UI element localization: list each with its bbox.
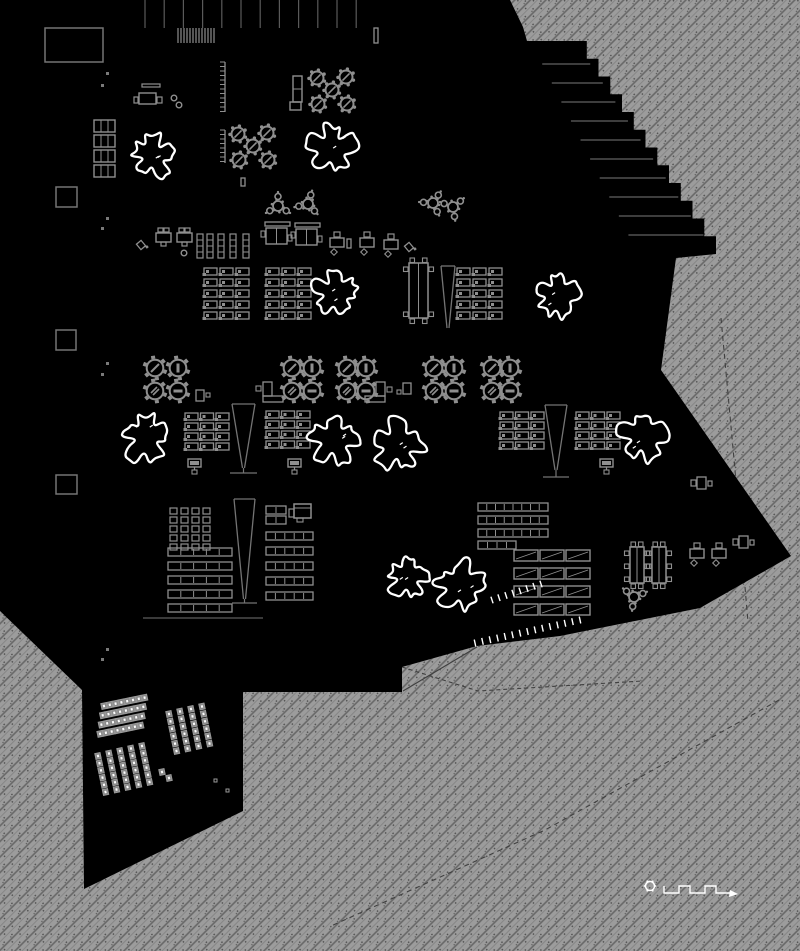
chair-seat <box>312 377 316 381</box>
auditorium-chair <box>116 718 123 725</box>
desk-chair <box>530 437 534 440</box>
desk-screen <box>300 270 303 273</box>
chair <box>434 377 438 381</box>
desk-chair <box>296 426 300 429</box>
auditorium-chair <box>132 767 139 774</box>
chair <box>312 377 316 381</box>
auditorium-chair <box>124 784 131 791</box>
chair-bump <box>243 128 246 131</box>
chair <box>288 378 292 382</box>
chair-bump <box>228 133 231 136</box>
chair <box>343 378 347 382</box>
auditorium-chair <box>134 705 141 712</box>
chair-bump <box>323 98 326 101</box>
desk-screen <box>299 423 302 426</box>
chair-bump <box>340 96 343 99</box>
chair-seat <box>362 355 366 359</box>
auditorium-chair <box>130 697 137 704</box>
chair-bump <box>273 134 276 137</box>
table-bump <box>301 201 304 204</box>
auditorium-chair <box>104 720 111 727</box>
auditorium-chair <box>102 789 109 796</box>
auditorium-chair <box>120 726 127 733</box>
chair-seat <box>288 378 292 382</box>
desk-screen <box>491 314 494 317</box>
auditorium-chair <box>194 735 201 742</box>
floor-plan-canvas <box>0 0 800 951</box>
chair-bump <box>253 136 256 139</box>
desk-screen <box>187 435 190 438</box>
table-bump <box>313 205 316 208</box>
grid-marker <box>101 373 104 376</box>
desk-chair <box>281 273 285 276</box>
chair-seat <box>343 355 347 359</box>
auditorium-chair <box>173 748 180 755</box>
satellite-dot <box>463 197 465 199</box>
chair-bump <box>322 72 325 75</box>
desk-screen <box>502 444 505 447</box>
desk-chair <box>296 436 300 439</box>
chair-bump <box>324 105 327 108</box>
auditorium-chair <box>95 753 102 760</box>
chair-seat <box>366 400 370 404</box>
desk-screen <box>268 292 271 295</box>
auditorium-chair <box>126 724 133 731</box>
auditorium-chair <box>128 706 135 713</box>
desk-screen <box>609 424 612 427</box>
chair <box>366 377 370 381</box>
desk-screen <box>284 423 287 426</box>
chair-bump <box>257 132 260 135</box>
chair-bump <box>246 138 249 141</box>
table-bump <box>628 600 631 603</box>
desk-chair <box>199 428 203 431</box>
desk-screen <box>578 434 581 437</box>
auditorium-chair <box>199 703 206 710</box>
chair-seat <box>155 377 159 381</box>
table-bump <box>427 206 430 209</box>
chair-bump <box>311 96 314 99</box>
desk-screen <box>491 281 494 284</box>
floor-plan <box>0 0 800 951</box>
chair-seat <box>492 377 496 381</box>
desk-chair <box>215 438 219 441</box>
desk-chair <box>235 273 239 276</box>
chair <box>506 355 510 359</box>
chair-bump <box>325 82 328 85</box>
chair-bump <box>341 109 344 112</box>
desk-chair <box>472 295 476 298</box>
desk-screen <box>502 414 505 417</box>
auditorium-chair <box>192 728 199 735</box>
desk-chair <box>265 436 269 439</box>
desk-screen <box>502 424 505 427</box>
desk-screen <box>299 433 302 436</box>
chair-bump <box>317 68 320 71</box>
desk-screen <box>206 281 209 284</box>
table-bump <box>458 208 461 211</box>
desk-chair <box>575 437 579 440</box>
chair-seat <box>506 355 510 359</box>
desk-screen <box>284 270 287 273</box>
desk-chair <box>297 317 301 320</box>
auditorium-chair <box>103 729 110 736</box>
north-bump <box>644 885 646 887</box>
chair <box>151 355 155 359</box>
chair <box>288 355 292 359</box>
chair-seat <box>430 378 434 382</box>
auditorium-chair <box>169 725 176 732</box>
chair-bump <box>239 150 242 153</box>
chair-bump <box>323 79 326 82</box>
desk-chair <box>199 448 203 451</box>
chair <box>292 400 296 404</box>
desk-chair <box>281 317 285 320</box>
desk-chair <box>265 446 269 449</box>
desk-screen <box>518 424 521 427</box>
auditorium-chair <box>133 714 140 721</box>
desk-chair <box>472 306 476 309</box>
auditorium-chair <box>166 711 173 718</box>
chair-bump <box>259 147 262 150</box>
chair-bump <box>274 161 277 164</box>
auditorium-chair <box>120 762 127 769</box>
auditorium-chair <box>145 771 152 778</box>
desk-chair <box>235 317 239 320</box>
chair-seat <box>347 400 351 404</box>
desk-chair <box>265 426 269 429</box>
chair-seat <box>510 377 514 381</box>
auditorium-chair <box>111 709 118 716</box>
chair-bump <box>238 124 241 127</box>
chair-seat <box>155 400 159 404</box>
auditorium-chair <box>101 781 108 788</box>
desk-chair <box>219 306 223 309</box>
desk-screen <box>475 303 478 306</box>
grid-marker <box>101 227 104 230</box>
desk-chair <box>215 448 219 451</box>
chair <box>450 355 454 359</box>
desk-screen <box>609 434 612 437</box>
chair-bump <box>337 84 340 87</box>
desk-chair <box>514 447 518 450</box>
chair-seat <box>151 355 155 359</box>
chair-seat <box>454 377 458 381</box>
desk-chair <box>488 295 492 298</box>
auditorium-chair <box>202 718 209 725</box>
auditorium-chair <box>142 757 149 764</box>
desk-screen <box>475 292 478 295</box>
desk-chair <box>219 273 223 276</box>
desk-screen <box>222 303 225 306</box>
desk-screen <box>578 414 581 417</box>
auditorium-chair <box>96 760 103 767</box>
table-bump <box>302 207 305 210</box>
desk-chair <box>265 295 269 298</box>
auditorium-chair <box>121 769 128 776</box>
auditorium-chair <box>134 774 141 781</box>
desk-chair <box>472 317 476 320</box>
chair <box>488 355 492 359</box>
table-bump <box>447 210 450 213</box>
desk-chair <box>472 273 476 276</box>
chair-seat <box>288 355 292 359</box>
chair-bump <box>339 69 342 72</box>
chair-bump <box>317 84 320 87</box>
desk-chair <box>456 284 460 287</box>
table-bump <box>430 196 433 199</box>
desk-screen <box>238 292 241 295</box>
desk-screen <box>203 415 206 418</box>
chair <box>343 355 347 359</box>
auditorium-chair <box>143 764 150 771</box>
auditorium-chair <box>118 755 125 762</box>
chair-bump <box>262 165 265 168</box>
desk-screen <box>222 281 225 284</box>
screen-fill <box>190 461 199 465</box>
desk-chair <box>606 437 610 440</box>
desk-chair <box>184 438 188 441</box>
auditorium-chair <box>117 748 124 755</box>
chair-seat <box>488 378 492 382</box>
desk-chair <box>203 284 207 287</box>
desk-screen <box>594 414 597 417</box>
desk-screen <box>206 292 209 295</box>
north-bump <box>652 880 654 882</box>
desk-screen <box>203 435 206 438</box>
chair <box>151 378 155 382</box>
desk-screen <box>459 314 462 317</box>
desk-chair <box>606 427 610 430</box>
chair-bump <box>273 154 276 157</box>
auditorium-chair <box>178 715 185 722</box>
chair <box>434 400 438 404</box>
desk-screen <box>238 281 241 284</box>
desk-screen <box>238 314 241 317</box>
auditorium-chair <box>200 710 207 717</box>
chair-bump <box>351 71 354 74</box>
auditorium-chair <box>137 722 144 729</box>
chair-bump <box>261 152 264 155</box>
desk-chair <box>514 427 518 430</box>
auditorium-chair <box>188 706 195 713</box>
desk-chair <box>265 416 269 419</box>
desk-chair <box>590 437 594 440</box>
chair-seat <box>366 377 370 381</box>
auditorium-chair <box>206 740 213 747</box>
chair-bump <box>352 78 355 81</box>
desk-screen <box>206 270 209 273</box>
chair-bump <box>244 135 247 138</box>
chair-bump <box>231 126 234 129</box>
chair <box>362 378 366 382</box>
desk-chair <box>488 273 492 276</box>
satellite-dot <box>454 220 456 222</box>
chair-seat <box>308 355 312 359</box>
chair-seat <box>343 378 347 382</box>
chair-seat <box>362 378 366 382</box>
chair-bump <box>310 70 313 73</box>
desk-screen <box>533 414 536 417</box>
chair-bump <box>258 159 261 162</box>
chair-seat <box>151 378 155 382</box>
satellite-dot <box>418 201 420 203</box>
desk-chair <box>265 317 269 320</box>
desk-screen <box>284 303 287 306</box>
chair-bump <box>308 103 311 106</box>
desk-screen <box>222 314 225 317</box>
chair-bump <box>352 98 355 101</box>
chair-bump <box>346 67 349 70</box>
auditorium-chair <box>129 752 136 759</box>
chair-bump <box>268 166 271 169</box>
desk-chair <box>219 284 223 287</box>
auditorium-chair <box>203 725 210 732</box>
grid-marker <box>106 217 109 220</box>
desk-chair <box>456 273 460 276</box>
desk-chair <box>456 317 460 320</box>
desk-screen <box>268 413 271 416</box>
desk-screen <box>203 425 206 428</box>
chair-seat <box>292 400 296 404</box>
desk-screen <box>609 444 612 447</box>
auditorium-chair <box>195 743 202 750</box>
chair <box>312 400 316 404</box>
chair <box>347 377 351 381</box>
auditorium-chair <box>107 757 114 764</box>
auditorium-chair <box>99 774 106 781</box>
auditorium-chair <box>123 707 130 714</box>
table-bump <box>639 598 642 601</box>
desk-screen <box>300 281 303 284</box>
grid-marker <box>101 658 104 661</box>
chair-seat <box>510 400 514 404</box>
desk-chair <box>235 284 239 287</box>
desk-chair <box>297 306 301 309</box>
desk-chair <box>184 418 188 421</box>
chair-seat <box>434 377 438 381</box>
desk-screen <box>578 424 581 427</box>
auditorium-chair <box>181 730 188 737</box>
auditorium-chair <box>105 711 112 718</box>
chair-seat <box>450 378 454 382</box>
auditorium-chair <box>98 721 105 728</box>
chair <box>366 400 370 404</box>
chair-seat <box>506 378 510 382</box>
desk-screen <box>284 433 287 436</box>
chair-bump <box>312 109 315 112</box>
satellite-dot <box>316 213 318 215</box>
desk-chair <box>590 427 594 430</box>
auditorium-chair <box>183 738 190 745</box>
desk-screen <box>594 444 597 447</box>
desk-chair <box>472 284 476 287</box>
chair-seat <box>312 400 316 404</box>
desk-chair <box>530 427 534 430</box>
auditorium-chair <box>139 713 146 720</box>
satellite-dot <box>311 190 313 192</box>
chair <box>492 377 496 381</box>
chair-bump <box>229 159 232 162</box>
desk-screen <box>533 434 536 437</box>
table-bump <box>281 200 284 203</box>
auditorium-chair <box>140 703 147 710</box>
table-bump <box>450 200 453 203</box>
desk-chair <box>499 427 503 430</box>
desk-chair <box>265 284 269 287</box>
auditorium-chair <box>109 764 116 771</box>
desk-chair <box>488 284 492 287</box>
satellite-dot <box>631 610 633 612</box>
desk-screen <box>491 303 494 306</box>
desk-screen <box>299 413 302 416</box>
satellite-dot <box>289 212 291 214</box>
auditorium-chair <box>98 767 105 774</box>
chair <box>178 377 182 381</box>
auditorium-chair <box>110 772 117 779</box>
desk-chair <box>575 427 579 430</box>
desk-screen <box>218 435 221 438</box>
chair-bump <box>232 152 235 155</box>
chair-bump <box>318 110 321 113</box>
auditorium-chair <box>140 750 147 757</box>
desk-screen <box>533 444 536 447</box>
north-bump <box>646 890 648 892</box>
chair-bump <box>332 80 335 83</box>
chair-seat <box>488 355 492 359</box>
auditorium-chair <box>132 723 139 730</box>
chair-bump <box>238 140 241 143</box>
desk-chair <box>235 306 239 309</box>
desk-screen <box>475 314 478 317</box>
desk-screen <box>475 270 478 273</box>
chair-bump <box>244 154 247 157</box>
chair-bump <box>233 165 236 168</box>
desk-screen <box>502 434 505 437</box>
desk-screen <box>300 314 303 317</box>
chair <box>155 377 159 381</box>
desk-screen <box>268 303 271 306</box>
chair-seat <box>178 377 182 381</box>
desk-chair <box>280 446 284 449</box>
auditorium-chair <box>101 703 108 710</box>
chair-bump <box>346 83 349 86</box>
auditorium-chair <box>113 786 120 793</box>
desk-chair <box>606 417 610 420</box>
desk-chair <box>530 447 534 450</box>
satellite-dot <box>440 190 442 192</box>
auditorium-chair <box>114 727 121 734</box>
auditorium-chair <box>123 776 130 783</box>
chair-bump <box>272 127 275 130</box>
desk-chair <box>514 417 518 420</box>
desk-screen <box>238 303 241 306</box>
chair-bump <box>267 123 270 126</box>
chair-bump <box>243 145 246 148</box>
north-bump <box>652 890 654 892</box>
auditorium-chair <box>99 712 106 719</box>
desk-screen <box>284 314 287 317</box>
auditorium-chair <box>108 728 115 735</box>
desk-screen <box>284 443 287 446</box>
desk-chair <box>530 417 534 420</box>
desk-chair <box>219 317 223 320</box>
desk-screen <box>238 270 241 273</box>
auditorium-chair <box>97 730 104 737</box>
table-bump <box>311 198 314 201</box>
north-bump <box>646 880 648 882</box>
desk-chair <box>297 273 301 276</box>
